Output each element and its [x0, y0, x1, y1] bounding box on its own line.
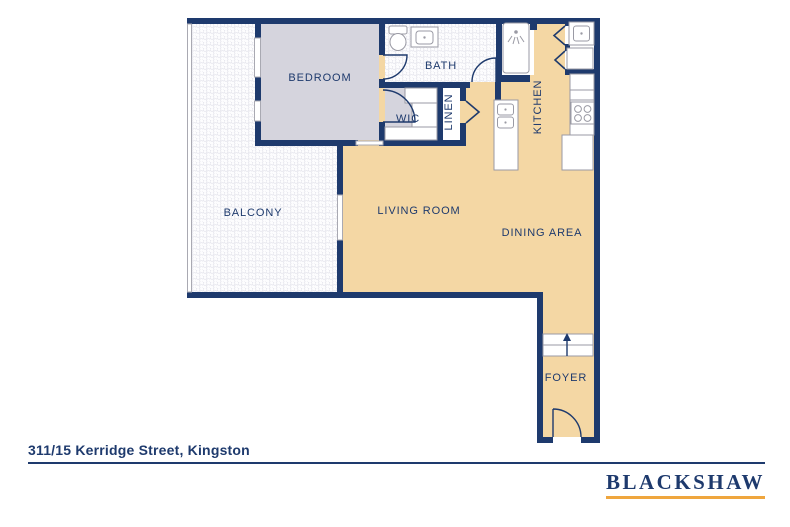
- laundry-sink-icon: [569, 22, 594, 45]
- bedroom-window-2: [255, 101, 261, 121]
- shower-icon: [503, 23, 529, 73]
- vanity-sink-icon: [411, 27, 438, 47]
- fridge-icon: [562, 135, 593, 170]
- balcony-sliding-door: [338, 195, 343, 240]
- washer-icon: [567, 48, 593, 69]
- living-room-label: LIVING ROOM: [377, 205, 460, 217]
- wic-label: WIC: [396, 113, 420, 125]
- bedroom-label: BEDROOM: [288, 72, 351, 84]
- dining-area-label: DINING AREA: [502, 227, 583, 239]
- stove-icon: [571, 102, 594, 124]
- balcony-railing: [188, 24, 192, 292]
- bedroom-sliding-door: [356, 141, 383, 145]
- floorplan-page: BEDROOM BATH WIC LINEN KITCHEN BALCONY L…: [0, 0, 790, 527]
- kitchen-label: KITCHEN: [532, 80, 544, 135]
- agency-logo: BLACKSHAW: [606, 470, 765, 499]
- balcony-label: BALCONY: [224, 207, 283, 219]
- property-address: 311/15 Kerridge Street, Kingston: [28, 442, 250, 458]
- bath-label: BATH: [425, 60, 457, 72]
- toilet-icon: [389, 26, 407, 51]
- kitchen-island-sink-icon: [494, 100, 518, 170]
- bedroom-window-1: [255, 38, 261, 77]
- entry-step-arrow: [543, 333, 593, 356]
- divider-line: [28, 462, 765, 464]
- foyer-label: FOYER: [545, 372, 587, 384]
- linen-label: LINEN: [443, 94, 455, 131]
